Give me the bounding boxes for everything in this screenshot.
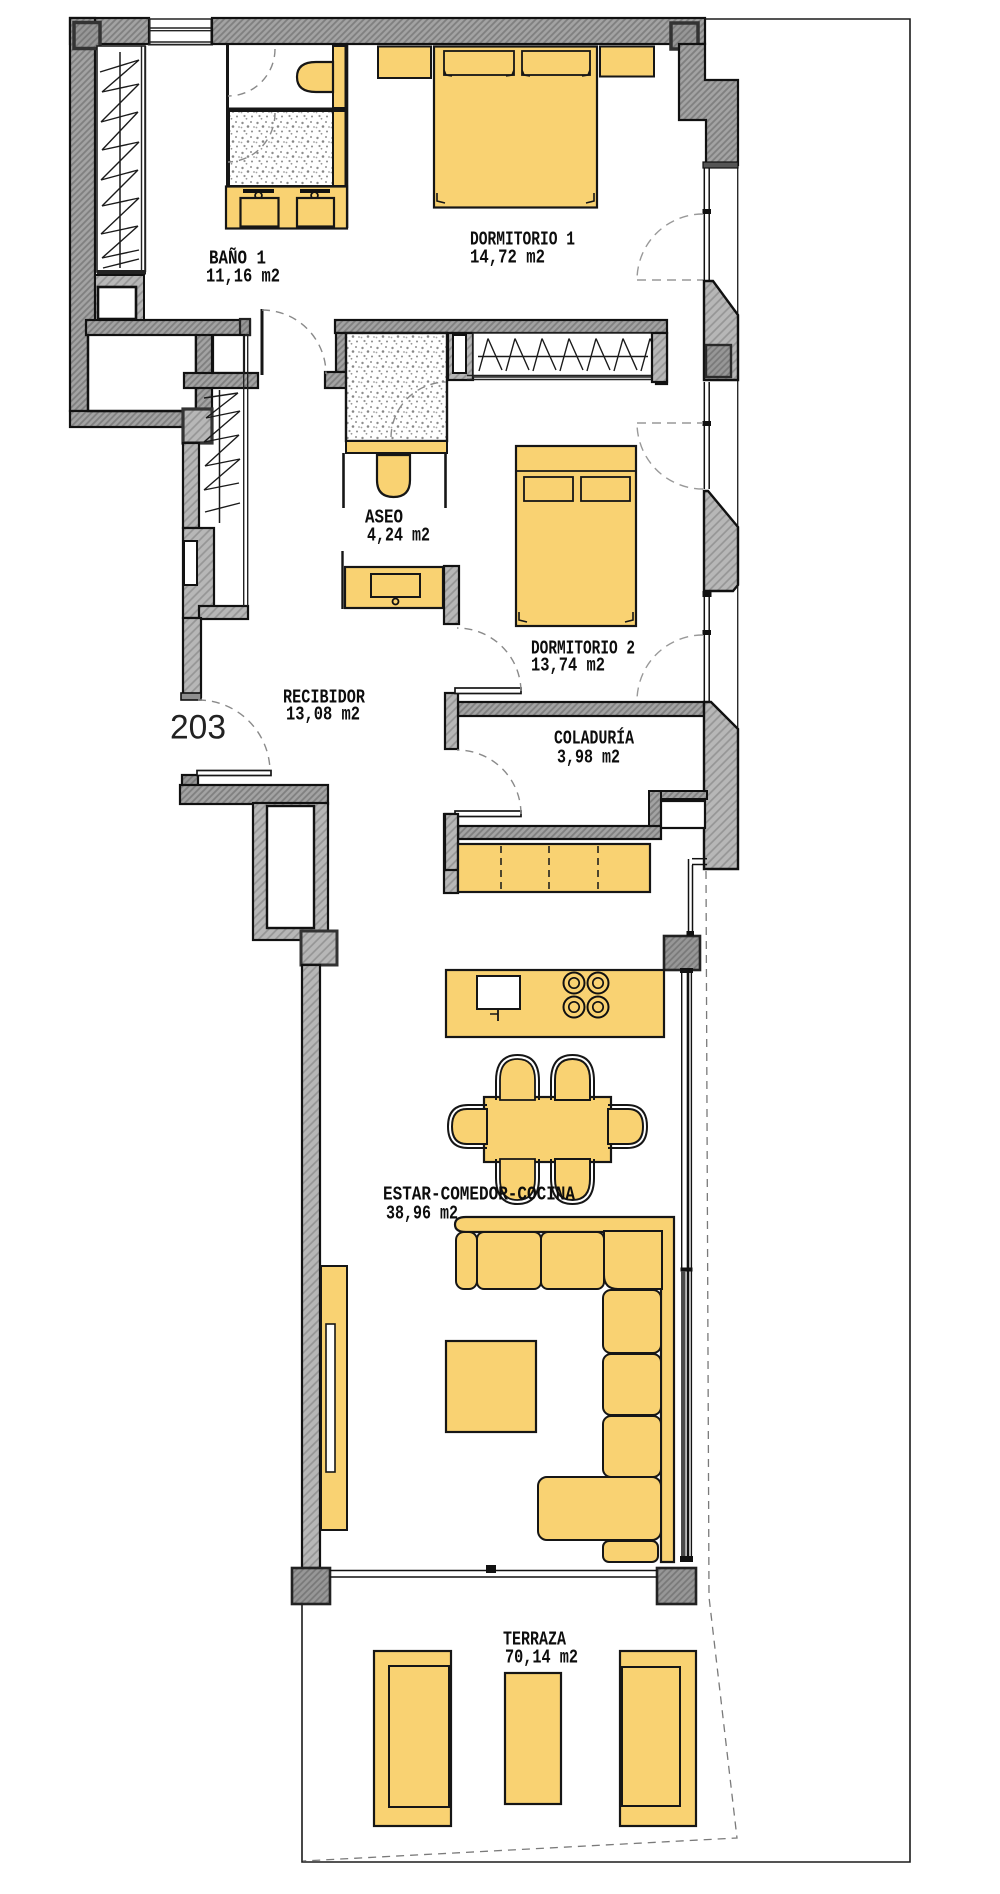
svg-text:203: 203 <box>170 709 226 747</box>
svg-text:70,14 m2: 70,14 m2 <box>505 1647 578 1669</box>
svg-text:13,74 m2: 13,74 m2 <box>531 655 605 677</box>
svg-text:4,24 m2: 4,24 m2 <box>367 525 430 547</box>
svg-text:3,98 m2: 3,98 m2 <box>557 747 620 769</box>
svg-text:13,08 m2: 13,08 m2 <box>286 704 360 726</box>
svg-text:11,16 m2: 11,16 m2 <box>206 266 280 288</box>
svg-text:14,72 m2: 14,72 m2 <box>470 247 545 269</box>
svg-text:38,96 m2: 38,96 m2 <box>386 1203 458 1225</box>
